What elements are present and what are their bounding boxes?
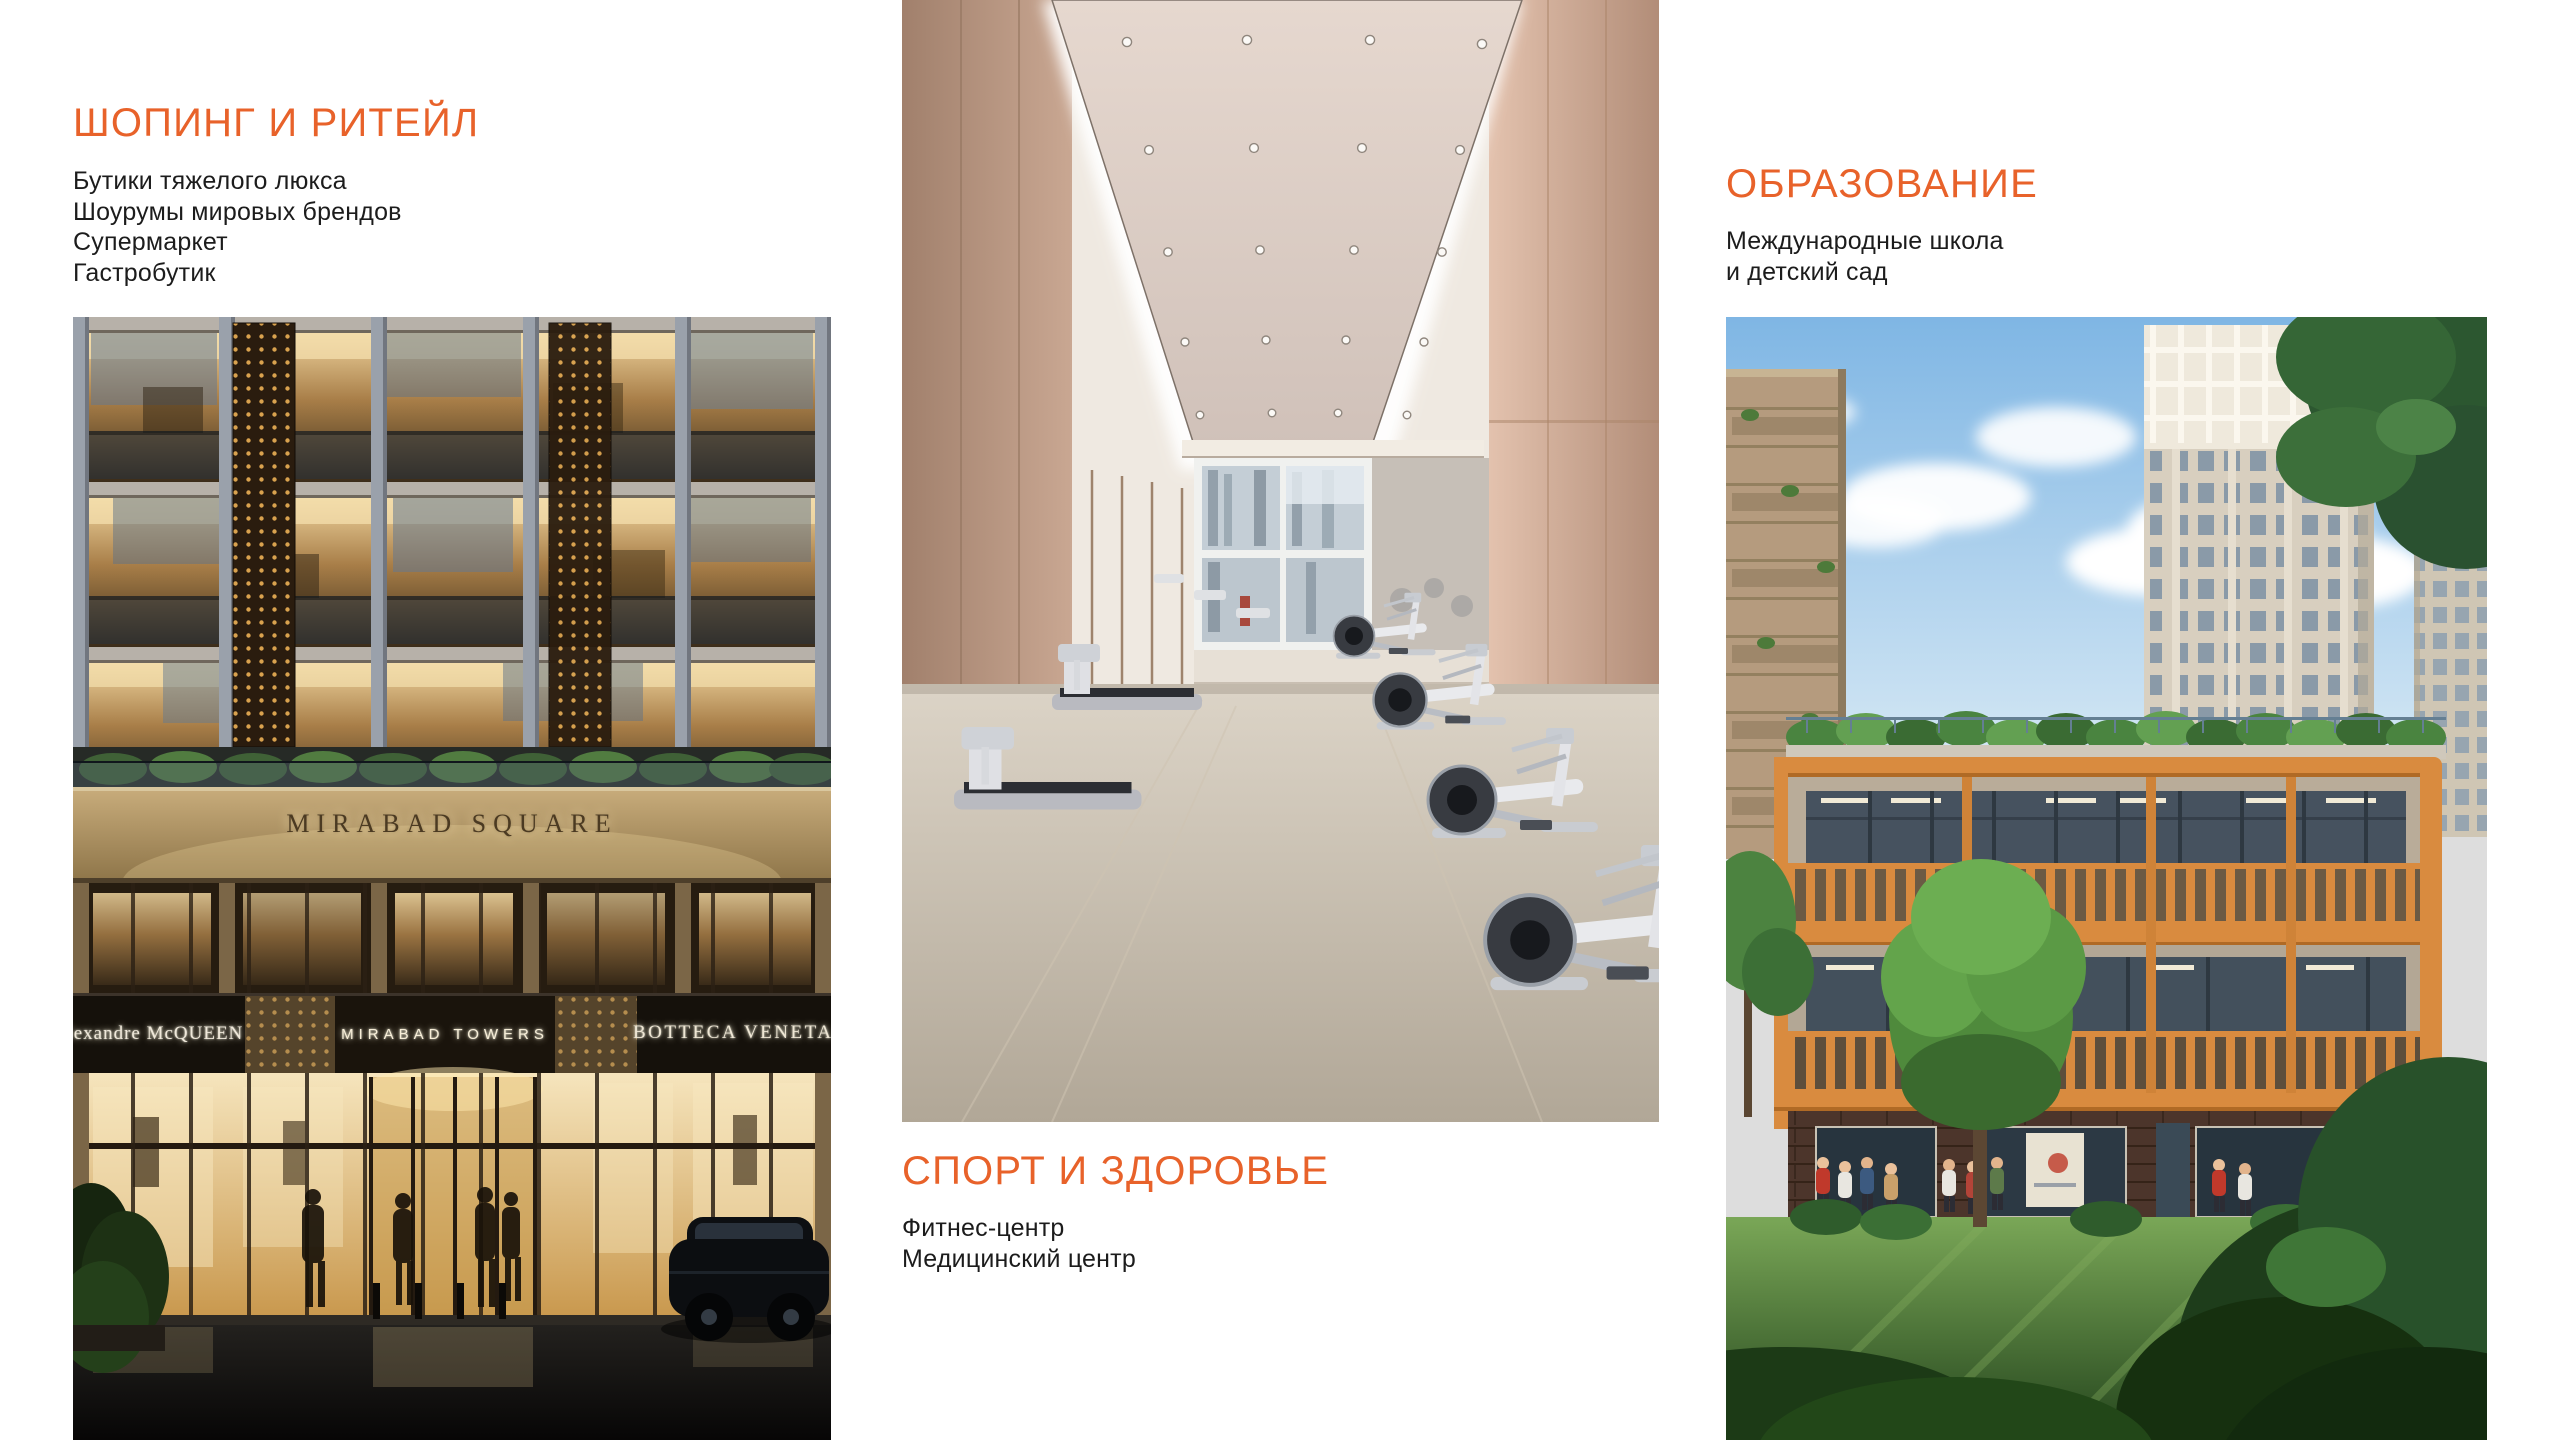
store-sign-right: BOTTECA VENETA <box>633 1022 831 1044</box>
feature-item: Бутики тяжелого люкса <box>73 166 402 197</box>
feature-item: Фитнес-центр <box>902 1213 1136 1244</box>
sport-photo <box>902 0 1659 1122</box>
sport-section-title: СПОРТ И ЗДОРОВЬЕ <box>902 1147 1329 1195</box>
retail-facade-illustration <box>73 317 831 1440</box>
fitness-gym-illustration <box>902 0 1659 1122</box>
feature-item: Гастробутик <box>73 258 402 289</box>
feature-item: Шоурумы мировых брендов <box>73 197 402 228</box>
entrance-sign: MIRABAD TOWERS <box>335 1026 555 1043</box>
feature-item: Медицинский центр <box>902 1244 1136 1275</box>
school-building-illustration <box>1726 317 2487 1440</box>
school-facade <box>1774 757 2442 1129</box>
feature-item: и детский сад <box>1726 257 2004 288</box>
shopping-photo: MIRABAD SQUARE Alexandre McQUEEN MIRABAD… <box>73 317 831 1440</box>
feature-item: Супермаркет <box>73 227 402 258</box>
shopping-feature-list: Бутики тяжелого люкса Шоурумы мировых бр… <box>73 166 402 288</box>
building-sign: MIRABAD SQUARE <box>73 809 831 839</box>
feature-item: Международные школа <box>1726 226 2004 257</box>
store-sign-left: Alexandre McQUEEN <box>73 1023 253 1045</box>
education-section-title: ОБРАЗОВАНИЕ <box>1726 160 2038 208</box>
shopping-section-title: ШОПИНГ И РИТЕЙЛ <box>73 99 479 147</box>
sport-feature-list: Фитнес-центр Медицинский центр <box>902 1213 1136 1274</box>
amenities-page: ШОПИНГ И РИТЕЙЛ Бутики тяжелого люкса Шо… <box>0 0 2560 1440</box>
education-photo <box>1726 317 2487 1440</box>
education-feature-list: Международные школа и детский сад <box>1726 226 2004 287</box>
